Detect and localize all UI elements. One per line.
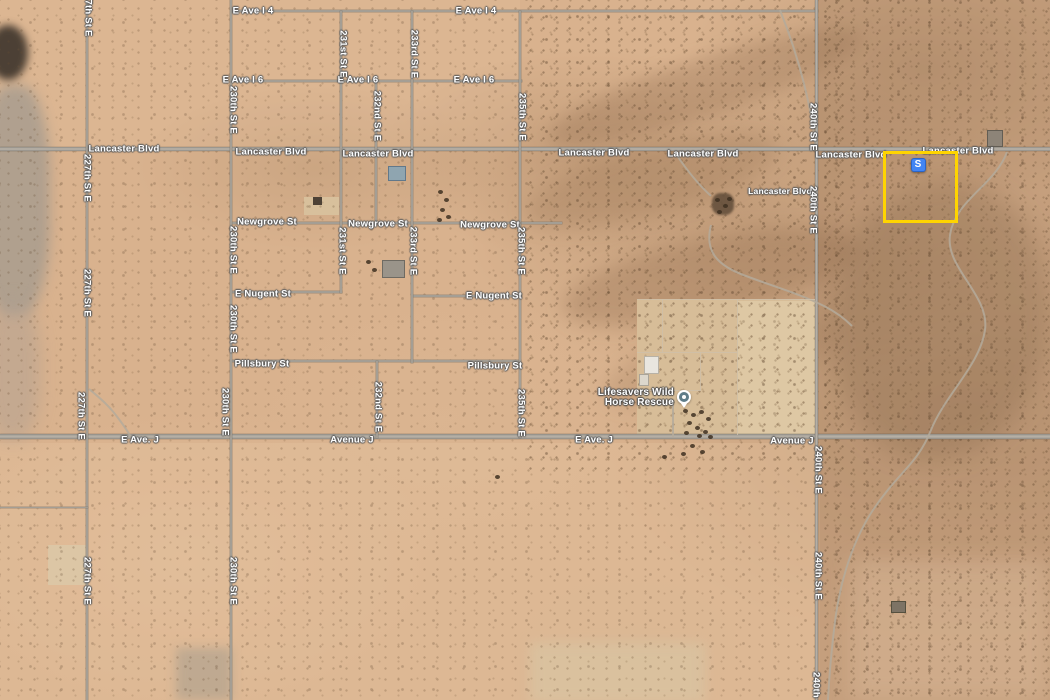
tree-shrub-dot: [444, 198, 449, 202]
street-label: Lancaster Blvd: [89, 144, 160, 155]
street-label: E Ave I 4: [456, 6, 497, 17]
terrain-tan-bottom-middle: [530, 643, 705, 700]
street-label: E Ave I 4: [233, 6, 274, 17]
street-label: 230th St E: [228, 86, 239, 134]
building-small-dark: [313, 197, 322, 205]
poi-marker-icon[interactable]: [677, 390, 691, 408]
street-label: 235th St E: [517, 93, 528, 141]
street-label: E Ave. J: [121, 435, 159, 446]
road-e-ave-i-4: [232, 10, 818, 12]
street-label: 240th St E: [813, 552, 824, 600]
street-label: Lancaster Blvd: [748, 186, 812, 196]
street-label: Avenue J: [330, 435, 374, 446]
tree-shrub-dot: [684, 431, 689, 435]
tree-shrub-dot: [683, 409, 688, 413]
street-label: Lancaster Blvd: [816, 150, 887, 161]
terrain-gray-bottom: [176, 648, 232, 700]
wash-band-1: [539, 8, 871, 165]
terrain-gray-west-2: [0, 300, 40, 440]
tree-shrub-dot: [703, 430, 708, 434]
street-label: Pillsbury St: [468, 361, 523, 372]
street-label: 233rd St E: [408, 227, 419, 275]
building-gray-cluster: [382, 260, 405, 278]
poi-inner: [679, 392, 689, 402]
ranch-cleared-pad-east: [737, 301, 815, 435]
trail-southwest: [89, 389, 131, 437]
poi-label-lifesavers[interactable]: Lifesavers Wild Horse Rescue: [560, 388, 674, 407]
terrain-gray-west: [0, 85, 50, 315]
east-ridge-dark: [812, 166, 1050, 474]
street-label: E Ave I 6: [223, 75, 264, 86]
listing-pin-marker[interactable]: S: [910, 158, 926, 171]
street-label: 230th St E: [220, 388, 231, 436]
tree-shrub-dot: [437, 218, 442, 222]
street-label: 232nd St E: [372, 91, 383, 142]
street-label: 240th St E: [813, 446, 824, 494]
street-label: 227th St E: [82, 154, 93, 202]
road-field-line: [0, 507, 88, 508]
wash-band-2: [516, 115, 784, 246]
fence-mid: [637, 352, 737, 353]
street-label: 232nd St E: [373, 382, 384, 433]
trail-ranch-loop: [709, 225, 852, 326]
fence-v1: [662, 299, 663, 352]
tree-shrub-dot: [717, 210, 722, 214]
street-label: Lancaster Blvd: [923, 146, 994, 157]
street-label: Newgrove St: [460, 220, 520, 231]
street-label: Lancaster Blvd: [668, 149, 739, 160]
tree-shrub-dot: [697, 434, 702, 438]
tree-shrub-dot: [495, 475, 500, 479]
street-label: Newgrove St: [348, 219, 408, 230]
tree-shrub-dot: [706, 417, 711, 421]
street-label: 240th St E: [811, 672, 822, 700]
poi-label-line2: Horse Rescue: [560, 398, 674, 408]
trail-ranch-driveway: [676, 154, 711, 196]
tree-shrub-dot: [687, 421, 692, 425]
street-label: 7th St E: [83, 0, 94, 36]
street-label: 235th St E: [516, 227, 527, 275]
map-canvas[interactable]: E Ave I 4E Ave I 4E Ave I 6E Ave I 6E Av…: [0, 0, 1050, 700]
tree-shrub-dot: [681, 452, 686, 456]
tree-shrub-dot: [695, 426, 700, 430]
tree-shrub-dot: [438, 190, 443, 194]
building-blue-roof: [388, 166, 406, 181]
street-label: Lancaster Blvd: [343, 149, 414, 160]
poi-tail: [680, 402, 688, 408]
street-label: E Nugent St: [466, 291, 522, 302]
street-label: E Nugent St: [235, 289, 291, 300]
poi-core: [682, 395, 686, 399]
street-label: E Ave I 6: [454, 75, 495, 86]
ranch-barn: [644, 356, 659, 374]
street-label: 227th St E: [82, 557, 93, 605]
ranch-cleared-pad: [637, 299, 815, 437]
tree-shrub-dot: [691, 413, 696, 417]
terrain-dark-blob: [0, 25, 28, 80]
fence-v2: [700, 352, 701, 390]
tree-shrub-dot: [699, 410, 704, 414]
street-label: 230th St E: [228, 226, 239, 274]
street-label: Pillsbury St: [235, 359, 290, 370]
terrain-south-light: [0, 443, 820, 700]
tree-shrub-dot: [690, 444, 695, 448]
tree-shrub-dot: [723, 204, 728, 208]
street-label: 230th St E: [228, 305, 239, 353]
desert-speckle-right-column: [818, 0, 1050, 700]
tree-shrub-dot: [715, 198, 720, 202]
tree-shrub-dot: [708, 435, 713, 439]
ranch-shed: [639, 374, 649, 386]
tree-shrub-dot: [440, 208, 445, 212]
field-square-light: [48, 545, 86, 585]
street-label: 233rd St E: [409, 30, 420, 78]
tree-shrub-dot: [700, 450, 705, 454]
street-label: Lancaster Blvd: [559, 148, 630, 159]
tree-shrub-dot: [662, 455, 667, 459]
terrain-east-dark-column: [818, 0, 1050, 700]
street-label: Lancaster Blvd: [236, 147, 307, 158]
trail-east-wash: [828, 152, 1007, 700]
tree-shrub-dot: [372, 268, 377, 272]
tree-shrub-dot: [727, 197, 732, 201]
street-label: 235th St E: [516, 389, 527, 437]
pin-letter: S: [911, 158, 926, 172]
street-label: 227th St E: [76, 392, 87, 440]
building-south-of-avej: [891, 601, 906, 613]
street-label: Newgrove St: [237, 217, 297, 228]
street-label: 231st St E: [337, 227, 348, 274]
tree-shrub-dot: [446, 215, 451, 219]
street-label: Avenue J: [770, 436, 814, 447]
street-label: 231st St E: [338, 30, 349, 77]
street-label: 227th St E: [82, 269, 93, 317]
fence-v3: [737, 299, 738, 435]
tree-shrub-dot: [366, 260, 371, 264]
street-label: 240th St E: [808, 103, 819, 151]
fence-top: [637, 299, 815, 300]
building-east-of-parcel: [987, 130, 1003, 147]
street-label: 230th St E: [228, 557, 239, 605]
street-label: E Ave. J: [575, 435, 613, 446]
street-label: 240th St E: [808, 186, 819, 234]
bottom-right-light: [850, 560, 1050, 700]
